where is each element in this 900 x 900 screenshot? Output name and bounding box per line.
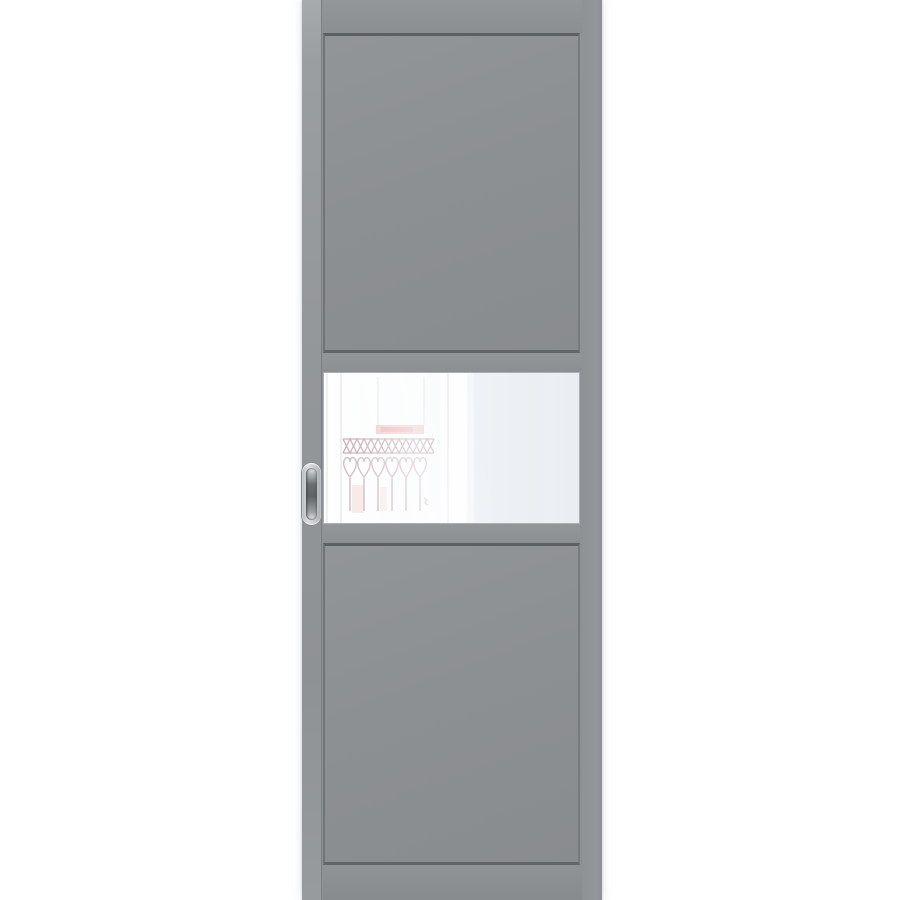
door-lower-panel	[323, 543, 580, 865]
door-glass-insert	[323, 372, 580, 524]
reflection-red-band-core	[381, 427, 413, 432]
flush-pull-handle	[302, 463, 321, 525]
reflection-soft-band	[474, 373, 544, 523]
door-upper-panel	[323, 33, 580, 353]
reflection-pink-smudge	[352, 485, 364, 513]
photo-background	[0, 0, 900, 900]
door-photo	[302, 0, 602, 900]
door-right-stile	[582, 0, 602, 900]
reflection-pink-smudge-small	[380, 487, 387, 511]
door-edge-stile	[302, 0, 322, 900]
flush-pull-handle-recess	[306, 468, 317, 520]
door-top-rail	[323, 0, 602, 33]
door-bottom-rail	[323, 865, 602, 900]
glass-reflection	[324, 373, 579, 523]
door-mid-rail-lower	[323, 524, 580, 543]
door-mid-rail-upper	[323, 353, 580, 372]
reflection-light-stripe	[441, 373, 467, 523]
